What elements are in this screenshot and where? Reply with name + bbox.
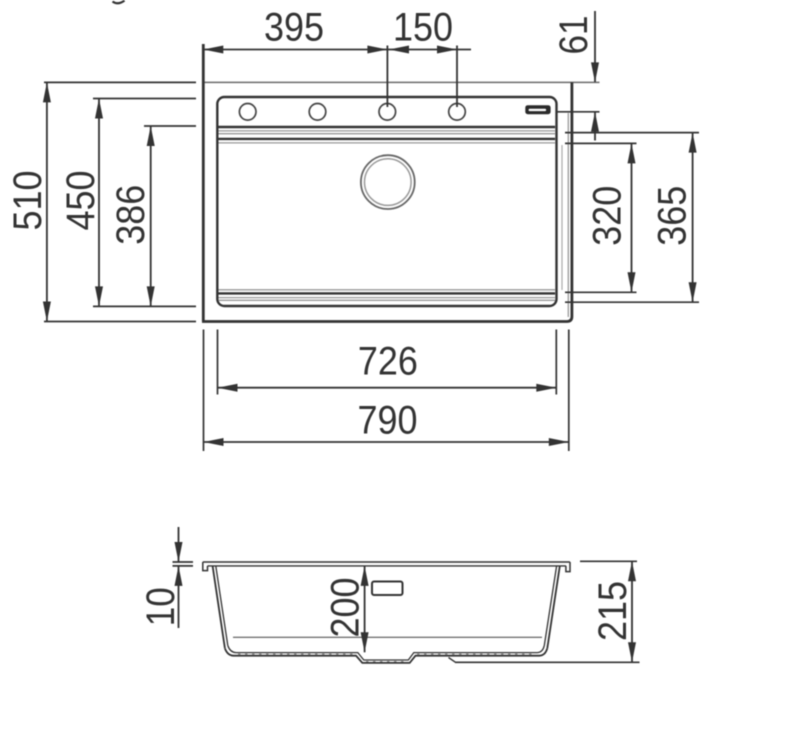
svg-text:450: 450 bbox=[59, 171, 103, 231]
svg-text:200: 200 bbox=[324, 578, 368, 638]
svg-text:510: 510 bbox=[6, 171, 50, 231]
svg-text:10: 10 bbox=[139, 587, 183, 626]
svg-text:395: 395 bbox=[264, 5, 324, 49]
svg-text:365: 365 bbox=[651, 186, 695, 246]
svg-text:726: 726 bbox=[358, 340, 418, 384]
svg-text:150: 150 bbox=[393, 5, 453, 49]
svg-text:386: 386 bbox=[109, 185, 153, 245]
svg-text:215: 215 bbox=[591, 581, 635, 641]
svg-text:790: 790 bbox=[358, 399, 418, 443]
svg-text:61: 61 bbox=[552, 16, 596, 55]
svg-text:320: 320 bbox=[586, 186, 630, 246]
